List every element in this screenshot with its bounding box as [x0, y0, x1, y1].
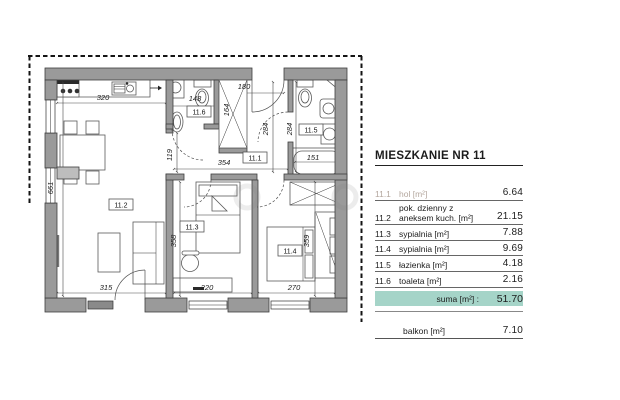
window-sill	[88, 301, 113, 309]
table-row: 11.3sypialnia [m²]7.88	[375, 225, 523, 241]
row-name: sypialnia [m²]	[399, 229, 487, 239]
floor-plan-drawing: 11.111.211.311.411.511.6 320661315220270…	[0, 0, 620, 400]
dimension-label: 220	[200, 283, 214, 292]
kitchen-sink	[112, 82, 136, 95]
toilet-door	[172, 129, 203, 160]
row-no: 11.4	[375, 244, 399, 254]
wall-niche	[57, 167, 79, 179]
row-value: 4.18	[487, 258, 523, 270]
bedroom2-door	[257, 180, 284, 207]
row-no: 11.6	[375, 276, 399, 286]
room-label: 11.5	[304, 128, 317, 135]
entrance-door	[252, 80, 284, 112]
row-name: łazienka [m²]	[399, 260, 487, 270]
dimension-label: 151	[307, 153, 320, 162]
row-value: 6.64	[487, 187, 523, 199]
dimension-label: 148	[189, 94, 202, 103]
dimension-label: 358	[169, 234, 178, 247]
room-label: 11.6	[192, 110, 205, 117]
balcony-value: 7.10	[445, 325, 523, 336]
total-area-row: suma [m²] : 51.70	[375, 291, 523, 306]
row-value: 21.15	[487, 211, 523, 223]
row-value: 7.88	[487, 227, 523, 239]
room-label: 11.2	[114, 203, 127, 210]
total-label: suma [m²] :	[375, 294, 487, 304]
balcony-label: balkon [m²]	[403, 326, 445, 336]
table-row: 11.5łazienka [m²]4.18	[375, 256, 523, 272]
row-no: 11.5	[375, 260, 399, 270]
desk-chair	[182, 251, 200, 272]
row-no: 11.3	[375, 229, 399, 239]
bathroom-toilet	[297, 80, 313, 107]
apartment-info-panel: MIESZKANIE NR 11 11.1hol [m²]6.6411.2pok…	[375, 150, 523, 339]
dimension-label: 180	[238, 82, 251, 91]
floor-plan-page: 11.111.211.311.411.511.6 320661315220270…	[0, 0, 620, 400]
area-table: 11.1hol [m²]6.6411.2pok. dzienny z aneks…	[375, 185, 523, 288]
row-name: hol [m²]	[399, 189, 487, 199]
balcony-row: balkon [m²] 7.10	[375, 325, 523, 339]
window	[189, 301, 227, 309]
window	[46, 100, 55, 133]
dimension-label: 270	[287, 283, 301, 292]
single-bed	[196, 182, 240, 253]
dimension-label: 354	[218, 158, 231, 167]
table-row: 11.6toaleta [m²]2.16	[375, 272, 523, 288]
dimension-label: 359	[302, 234, 311, 247]
apartment-title: MIESZKANIE NR 11	[375, 150, 523, 166]
row-value: 9.69	[487, 243, 523, 255]
dimension-label: 315	[100, 283, 113, 292]
row-name: sypialnia [m²]	[399, 244, 487, 254]
dimension-label: 119	[165, 148, 174, 161]
dimension-label: 284	[285, 123, 294, 137]
room-label: 11.1	[248, 156, 261, 163]
dimension-label: 284	[261, 123, 270, 137]
sofa	[133, 222, 164, 284]
table-row: 11.4sypialnia [m²]9.69	[375, 241, 523, 257]
table-row: 11.1hol [m²]6.64	[375, 185, 523, 201]
row-no: 11.2	[375, 213, 399, 223]
room-label: 11.4	[283, 249, 296, 256]
bathroom-sink	[320, 99, 337, 118]
divider	[375, 311, 523, 312]
row-no: 11.1	[375, 189, 399, 199]
entry-arrow-icon	[150, 86, 162, 91]
window	[271, 301, 309, 309]
total-value: 51.70	[487, 293, 523, 305]
stove	[57, 80, 79, 97]
table-row: 11.2pok. dzienny z aneksem kuch. [m²]21.…	[375, 201, 523, 225]
room-label: 11.3	[185, 225, 198, 232]
dimension-label: 661	[46, 182, 55, 195]
coffee-table	[98, 233, 120, 272]
row-name: pok. dzienny z aneksem kuch. [m²]	[399, 203, 487, 223]
row-name: toaleta [m²]	[399, 276, 487, 286]
row-value: 2.16	[487, 274, 523, 286]
dimension-label: 320	[97, 93, 110, 102]
dimension-label: 164	[222, 104, 231, 117]
